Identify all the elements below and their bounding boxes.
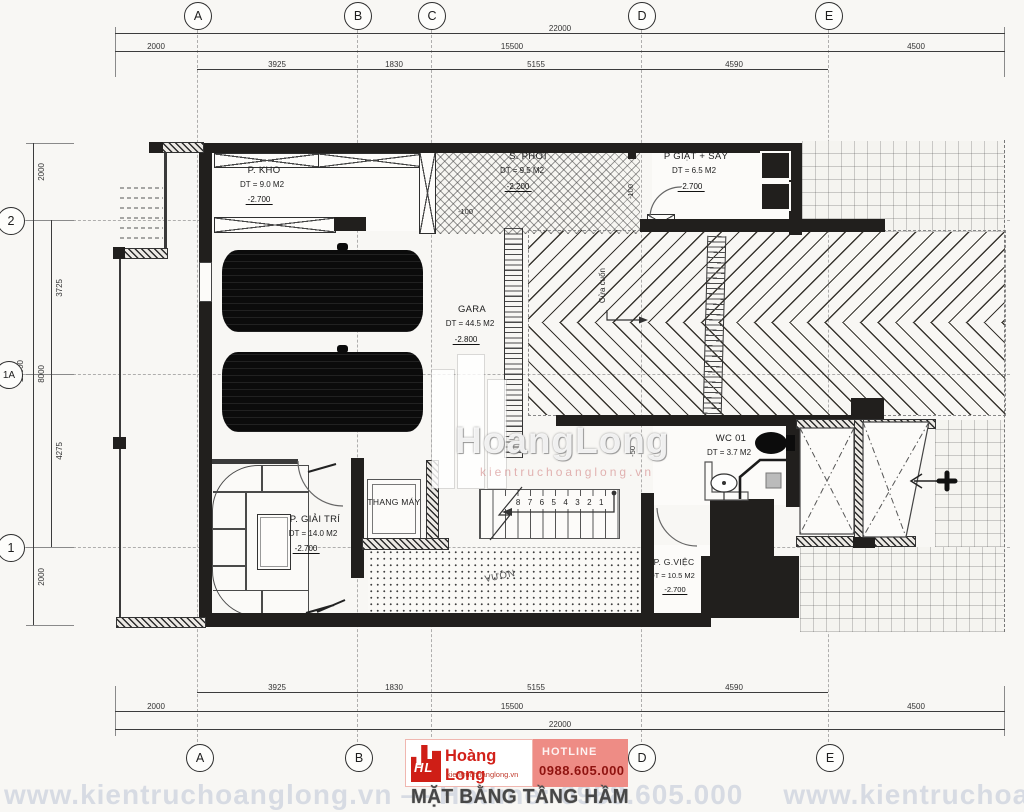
entry-marker	[939, 473, 955, 489]
dim-total-top: 22000	[549, 24, 571, 33]
grid-label: B	[354, 9, 362, 23]
stair-arrow-start	[612, 491, 617, 496]
exterior-stair	[120, 188, 163, 238]
grid-label: 1	[8, 541, 15, 555]
dim-bot: 5155	[527, 683, 545, 692]
dim-total-bottom: 22000	[549, 720, 571, 729]
door-arc	[650, 187, 681, 217]
dim-line	[51, 220, 52, 547]
dim-top: 3925	[268, 60, 286, 69]
grid-label: A	[196, 751, 204, 765]
dim-top: 4590	[725, 60, 743, 69]
grid-label: D	[637, 9, 646, 23]
hotline-box: HOTLINE 0988.605.000	[533, 739, 628, 787]
grid-bubble-D-bottom: D	[628, 744, 656, 772]
section-mark	[308, 464, 336, 472]
grid-label: 2	[8, 214, 15, 228]
grid-label: D	[637, 751, 646, 765]
level-50: -50	[628, 446, 637, 457]
brand-block: HL Hoàng Long kientruchoanglong.vn HOTLI…	[405, 739, 628, 787]
dim-line	[197, 692, 828, 693]
dim-top: 4500	[907, 42, 925, 51]
dim-left: 8000	[37, 365, 46, 383]
dim-top: 2000	[147, 42, 165, 51]
dim-line	[115, 33, 1005, 34]
grid-bubble-B-top: B	[344, 2, 372, 30]
dim-bot: 2000	[147, 702, 165, 711]
grid-label: E	[825, 9, 833, 23]
toilet-tank	[786, 435, 795, 451]
dim-left: 3725	[55, 279, 64, 297]
dim-left: 2000	[37, 163, 46, 181]
dim-top: 15500	[501, 42, 523, 51]
dim-left: 2000	[37, 568, 46, 586]
dim-bot: 1830	[385, 683, 403, 692]
grid-label: B	[355, 751, 363, 765]
door-arc	[657, 508, 697, 546]
grid-label: C	[427, 9, 436, 23]
dim-ext	[1004, 27, 1005, 77]
stair-arrow	[506, 495, 614, 512]
dim-line	[33, 143, 34, 625]
grid-bubble-D-top: D	[628, 2, 656, 30]
floorplan-canvas: 22000 2000 15500 4500 3925 1830 5155 459…	[0, 0, 1024, 812]
grid-bubble-A-top: A	[184, 2, 212, 30]
grid-bubble-E-top: E	[815, 2, 843, 30]
hotline-number: 0988.605.000	[539, 763, 625, 778]
brand-logo-box: HL Hoàng Long kientruchoanglong.vn	[405, 739, 533, 787]
dim-line	[115, 711, 1005, 712]
section-mark	[306, 600, 345, 613]
dim-top: 1830	[385, 60, 403, 69]
dim-bot: 3925	[268, 683, 286, 692]
dim-line	[115, 729, 1005, 730]
dim-line	[115, 51, 1005, 52]
plan-detail-overlay	[0, 0, 1024, 812]
toilet	[755, 432, 787, 454]
grid-label: 1A	[3, 370, 15, 381]
dim-ext	[26, 625, 74, 626]
dim-top: 5155	[527, 60, 545, 69]
grid-bubble-A-bottom: A	[186, 744, 214, 772]
hotline-label: HOTLINE	[542, 746, 597, 758]
grid-bubble-E-bottom: E	[816, 744, 844, 772]
rolling-door-arrow	[607, 310, 643, 320]
dim-line	[197, 69, 828, 70]
rolling-door-arrowhead	[639, 317, 648, 324]
grid-bubble-B-bottom: B	[345, 744, 373, 772]
dim-bot: 4590	[725, 683, 743, 692]
sheet-title: MẶT BẰNG TẦNG HẦM	[340, 786, 701, 809]
grid-bubble-C-top: C	[418, 2, 446, 30]
company-website: kientruchoanglong.vn	[447, 770, 518, 779]
dim-bot: 4500	[907, 702, 925, 711]
sink-drain	[722, 481, 726, 485]
floor-drain	[766, 473, 781, 488]
dim-bot: 15500	[501, 702, 523, 711]
grid-label: A	[194, 9, 202, 23]
level-100-b: -100	[626, 184, 635, 199]
company-name: Hoàng Long	[445, 747, 532, 785]
dim-left: 4275	[55, 442, 64, 460]
watermark-url-text: www.kientruchoanglong.vn — Hotline: 0988…	[783, 779, 1024, 811]
logo-initials: HL	[414, 760, 433, 775]
dim-ext	[115, 27, 116, 77]
grid-label: E	[826, 751, 834, 765]
